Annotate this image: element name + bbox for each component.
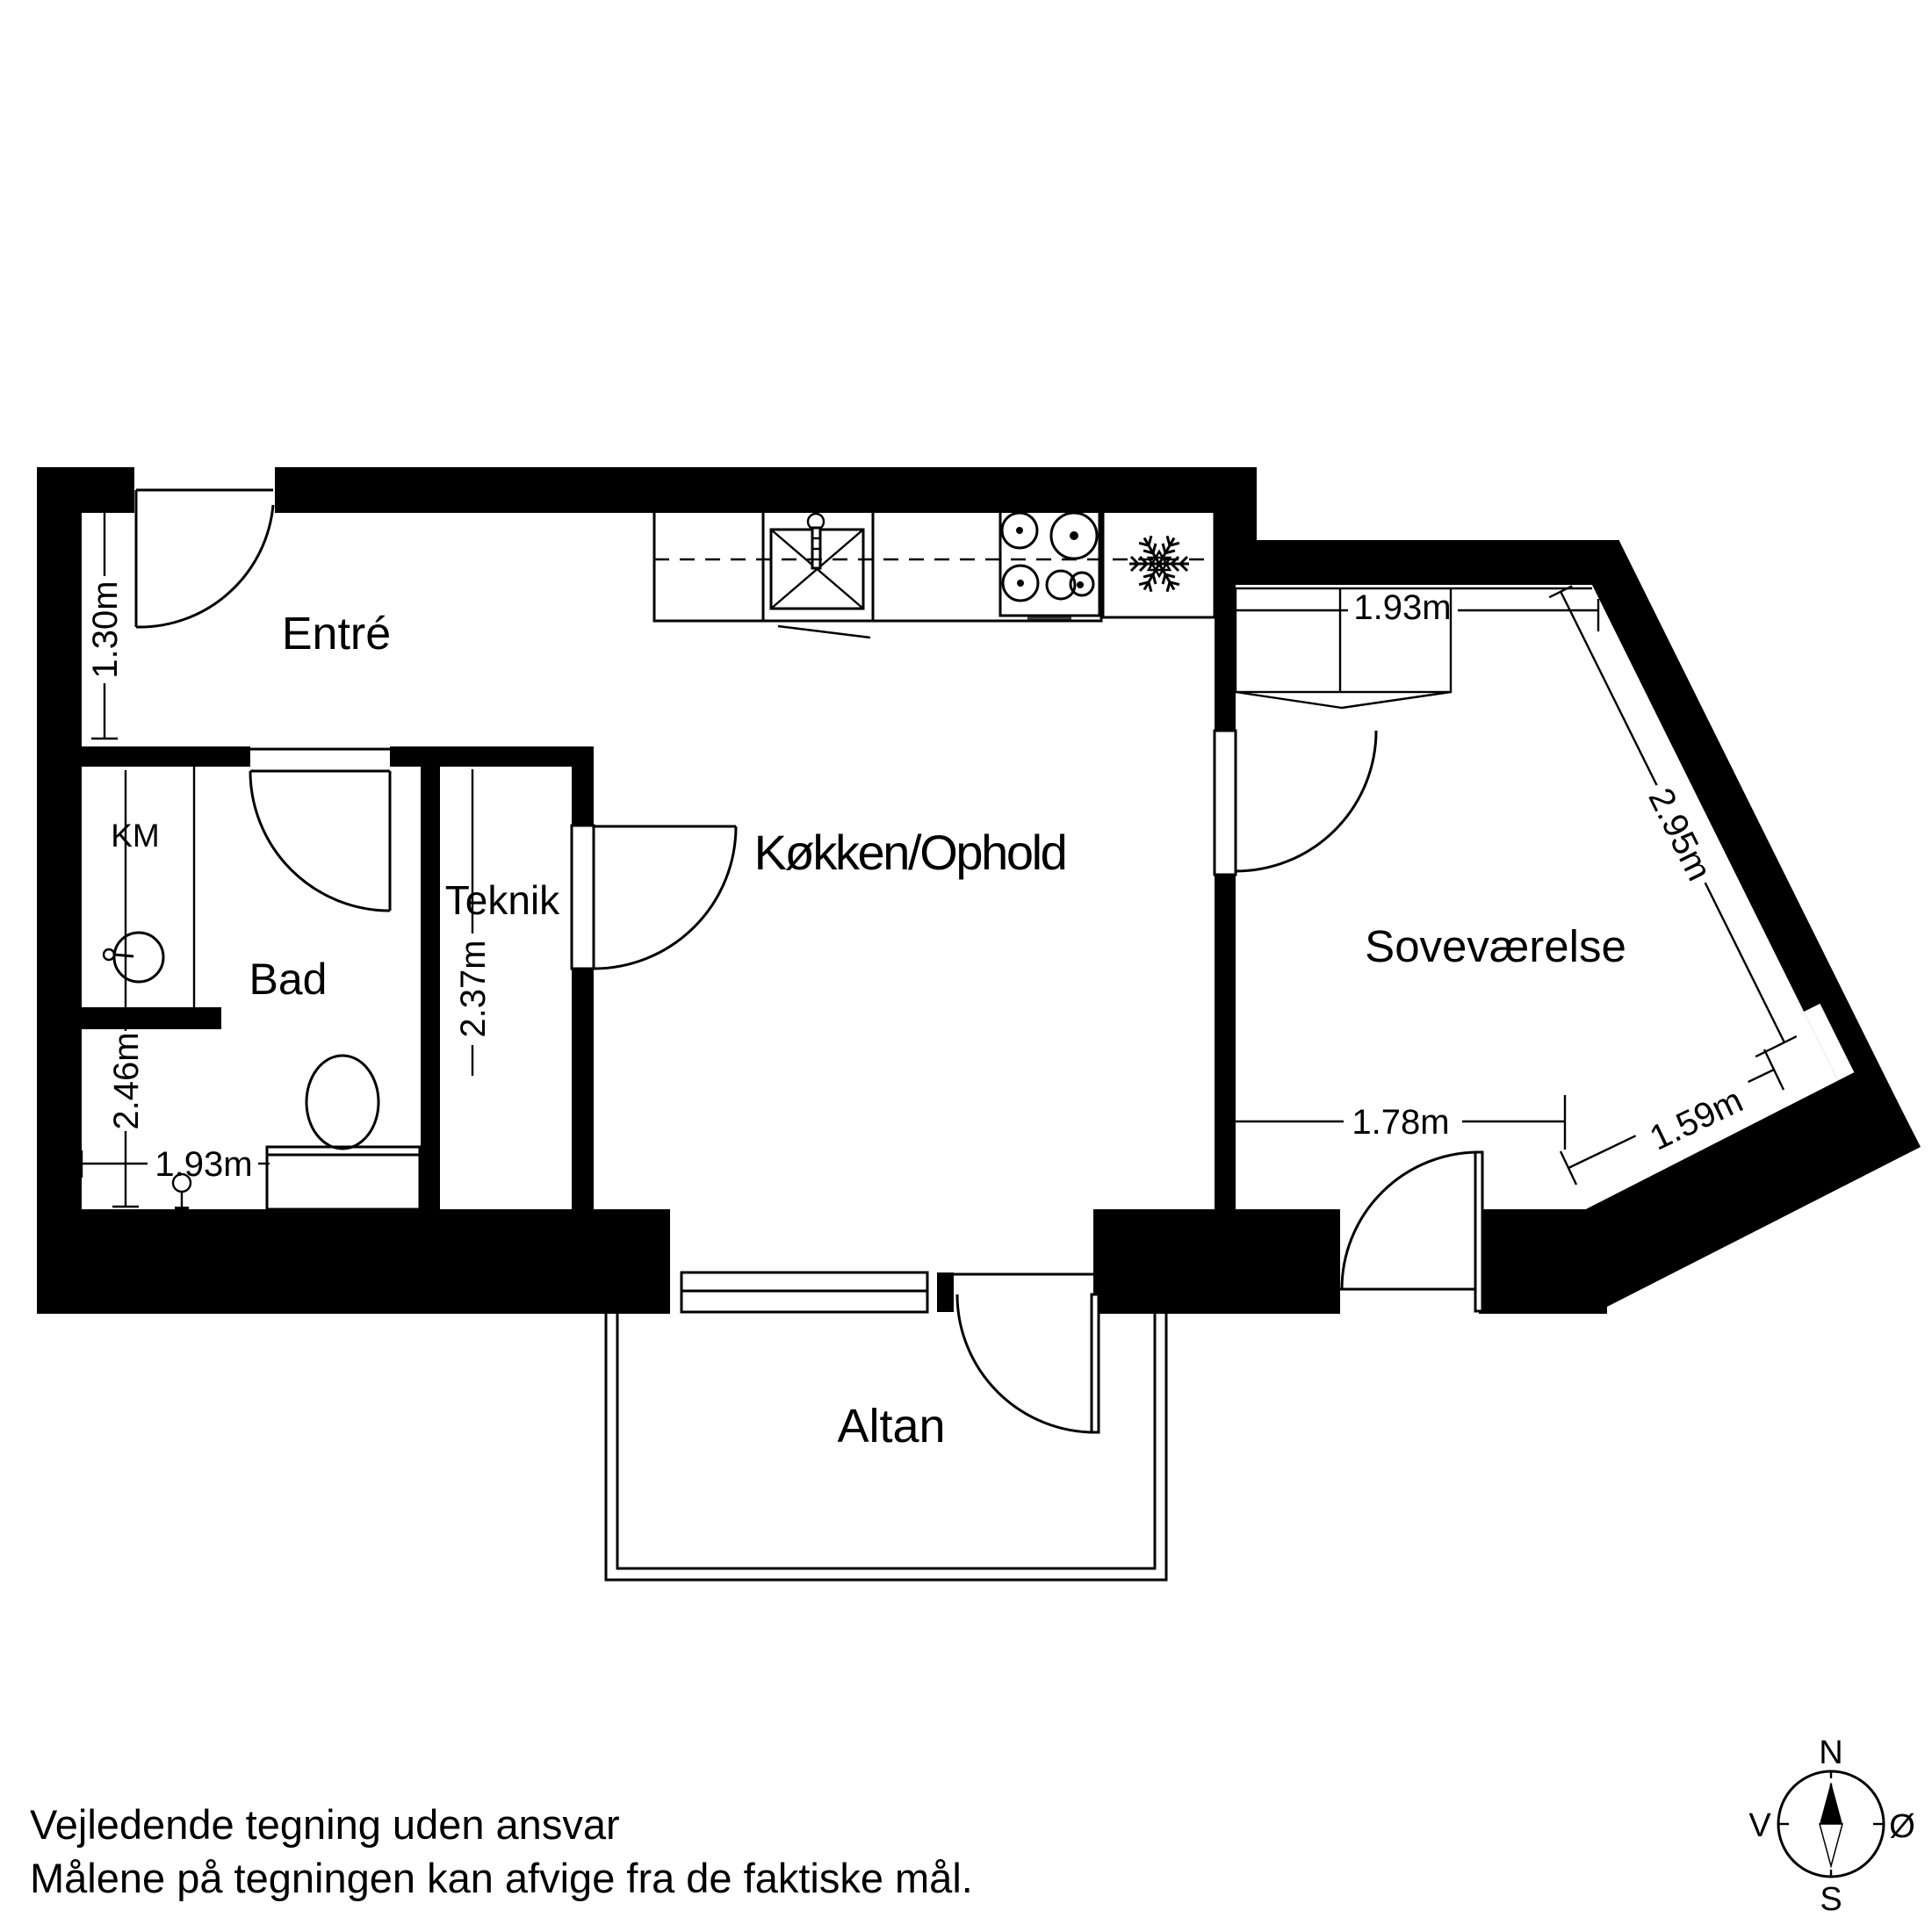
svg-text:2.37m: 2.37m <box>454 940 493 1037</box>
svg-text:Ø: Ø <box>1889 1808 1915 1845</box>
svg-text:Soveværelse: Soveværelse <box>1365 921 1626 971</box>
svg-text:Entré: Entré <box>282 609 391 660</box>
svg-text:Målene på tegningen kan afvige: Målene på tegningen kan afvige fra de fa… <box>30 1855 973 1901</box>
svg-text:Bad: Bad <box>249 955 328 1004</box>
svg-text:1.93m: 1.93m <box>1353 588 1451 627</box>
svg-text:Altan: Altan <box>837 1400 945 1453</box>
svg-text:2.46m: 2.46m <box>107 1032 146 1129</box>
svg-text:Vejledende tegning uden ansvar: Vejledende tegning uden ansvar <box>30 1801 620 1848</box>
svg-text:N: N <box>1819 1734 1842 1771</box>
svg-text:Teknik: Teknik <box>445 877 560 923</box>
svg-text:V: V <box>1748 1807 1771 1844</box>
svg-text:Køkken/Ophold: Køkken/Ophold <box>754 825 1066 880</box>
svg-text:KM: KM <box>111 818 160 854</box>
svg-text:1.78m: 1.78m <box>1352 1103 1449 1142</box>
svg-text:S: S <box>1820 1881 1842 1918</box>
svg-text:1.93m: 1.93m <box>155 1145 252 1184</box>
svg-text:1.30m: 1.30m <box>86 580 125 678</box>
